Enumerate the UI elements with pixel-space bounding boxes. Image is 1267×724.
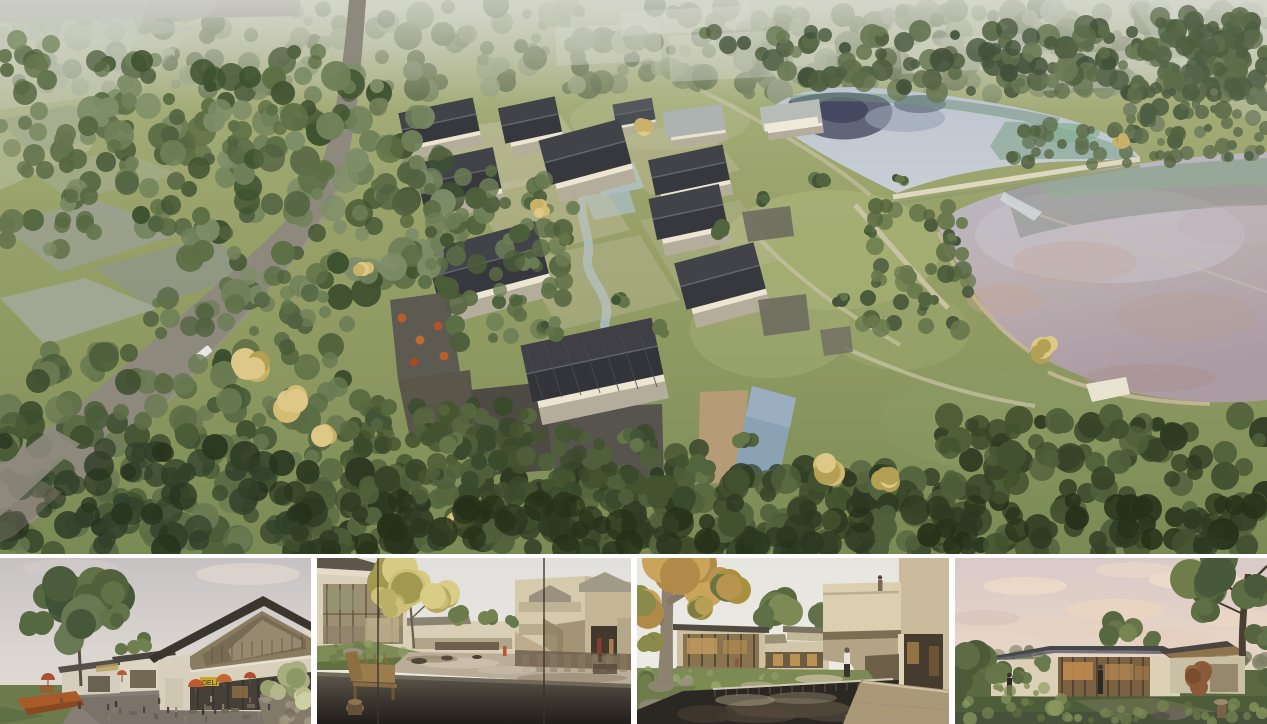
svg-text:DELI: DELI [202,680,218,687]
